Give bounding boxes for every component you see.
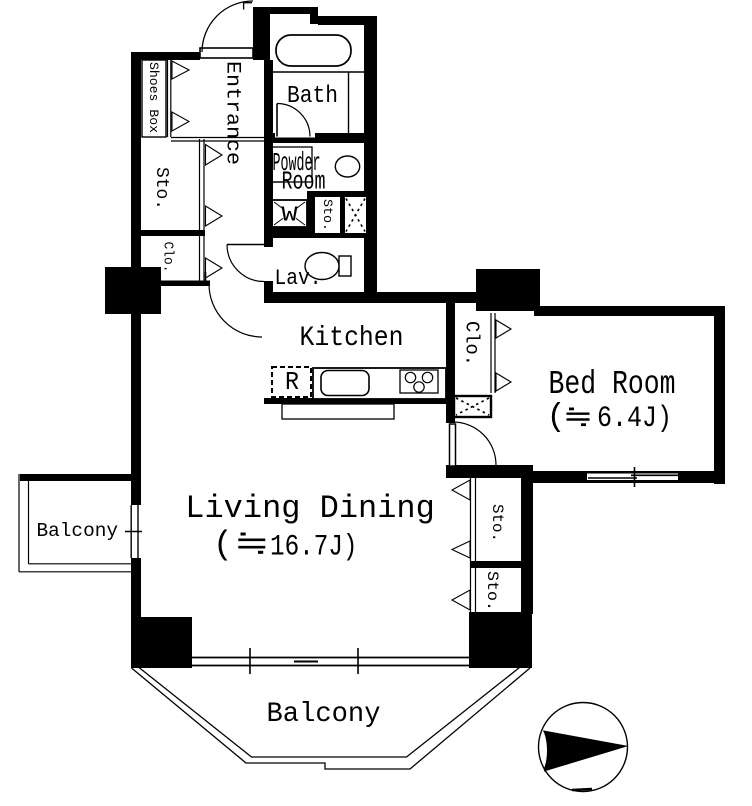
svg-text:6.4J): 6.4J)	[597, 402, 672, 436]
svg-text:Balcony: Balcony	[37, 520, 119, 542]
svg-text:(: (	[213, 527, 233, 564]
svg-text:Sto.: Sto.	[151, 167, 171, 210]
svg-text:Clo.: Clo.	[461, 321, 483, 366]
svg-text:Bed Room: Bed Room	[549, 366, 676, 403]
svg-text:Sto.: Sto.	[483, 571, 501, 611]
svg-text:Clo.: Clo.	[160, 242, 176, 273]
svg-text:Room: Room	[282, 167, 326, 197]
svg-text:Entrance: Entrance	[221, 61, 244, 165]
svg-text:R: R	[285, 367, 299, 397]
svg-text:Shoes Box: Shoes Box	[146, 62, 161, 133]
svg-text:Sto.: Sto.	[488, 504, 506, 542]
svg-text:Balcony: Balcony	[267, 699, 381, 730]
svg-text:16.7J): 16.7J)	[270, 531, 358, 565]
svg-text:Sto.: Sto.	[320, 199, 335, 231]
svg-text:Bath: Bath	[287, 83, 338, 110]
svg-text:W: W	[282, 205, 298, 228]
svg-text:(: (	[547, 399, 566, 436]
svg-text:Living Dining: Living Dining	[185, 490, 434, 527]
svg-text:Kitchen: Kitchen	[300, 323, 404, 354]
svg-text:Lav.: Lav.	[275, 266, 322, 291]
